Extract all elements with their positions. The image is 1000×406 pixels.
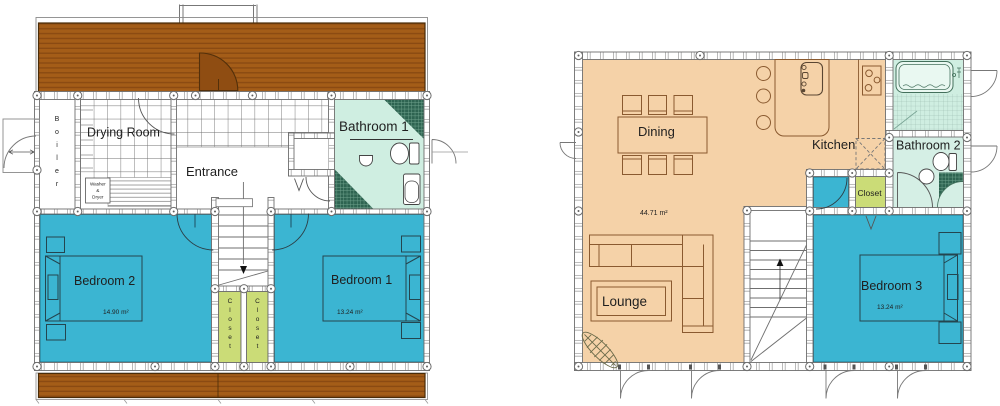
- svg-text:Dining: Dining: [638, 124, 675, 139]
- svg-text:o: o: [55, 129, 59, 136]
- svg-text:Dryer: Dryer: [92, 195, 104, 200]
- svg-text:o: o: [228, 316, 232, 323]
- svg-text:Bathroom 2: Bathroom 2: [896, 139, 961, 153]
- svg-text:e: e: [256, 334, 260, 341]
- svg-text:44.71 m²: 44.71 m²: [640, 210, 668, 217]
- svg-text:Bedroom 3: Bedroom 3: [861, 279, 922, 293]
- svg-text:&: &: [96, 188, 99, 193]
- svg-text:Bathroom 1: Bathroom 1: [339, 119, 409, 134]
- svg-text:Washer: Washer: [90, 182, 106, 187]
- svg-text:e: e: [55, 168, 59, 175]
- svg-text:Kitchen: Kitchen: [812, 137, 855, 152]
- svg-text:13.24 m²: 13.24 m²: [337, 309, 363, 316]
- svg-text:o: o: [256, 316, 260, 323]
- svg-text:Drying Room: Drying Room: [87, 126, 160, 140]
- svg-text:t: t: [229, 343, 231, 350]
- svg-text:Lounge: Lounge: [602, 294, 647, 309]
- svg-text:Bedroom 2: Bedroom 2: [74, 274, 135, 288]
- svg-text:t: t: [257, 343, 259, 350]
- svg-text:e: e: [228, 334, 232, 341]
- svg-text:14.90 m²: 14.90 m²: [103, 309, 129, 316]
- svg-text:C: C: [255, 298, 260, 305]
- svg-text:B: B: [55, 116, 60, 123]
- svg-text:Bedroom 1: Bedroom 1: [331, 273, 392, 287]
- svg-text:Entrance: Entrance: [186, 164, 238, 179]
- svg-text:13.24 m²: 13.24 m²: [877, 304, 903, 311]
- svg-text:C: C: [228, 298, 233, 305]
- svg-text:Closet: Closet: [858, 188, 883, 198]
